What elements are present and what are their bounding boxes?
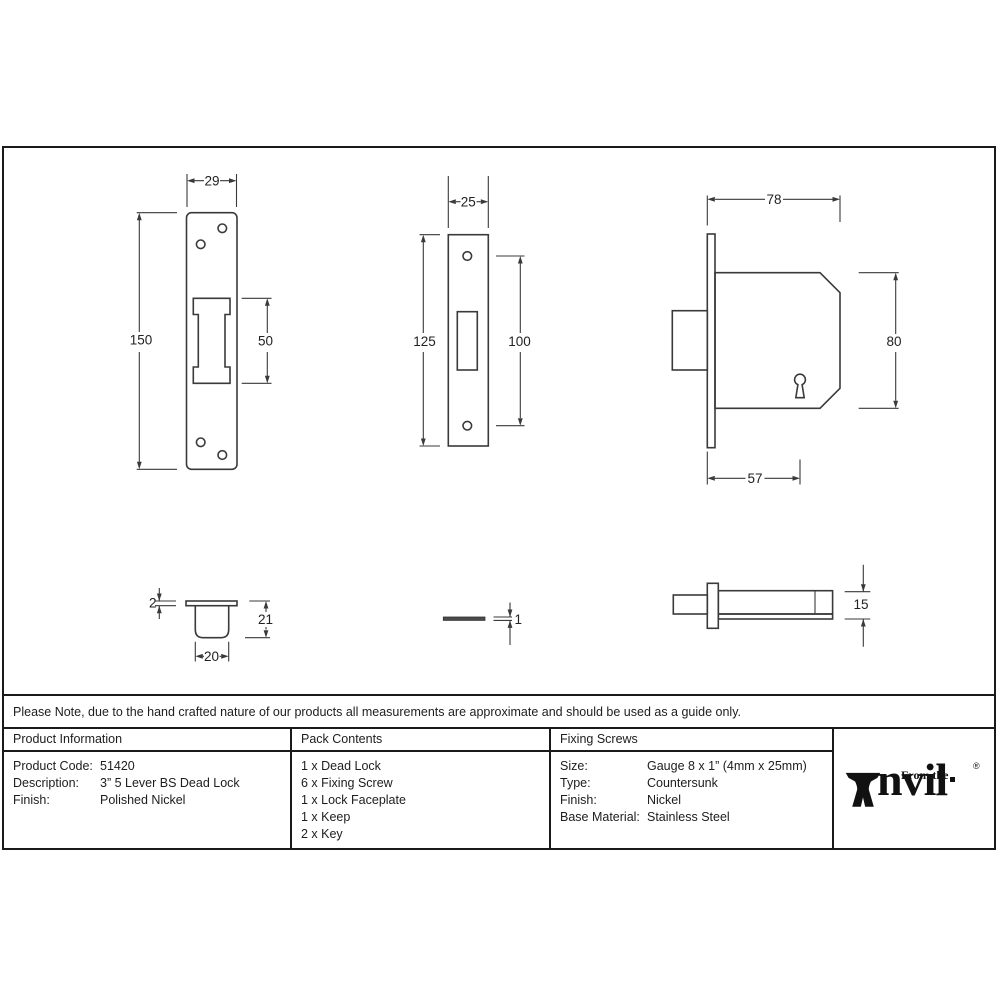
dim-height-125: 125 (413, 235, 440, 446)
logo-dot (950, 777, 955, 782)
row-label: Product Code: (13, 758, 100, 775)
dim-label: 25 (461, 194, 476, 209)
dim-label: 2 (149, 596, 157, 611)
dim-label: 57 (747, 471, 762, 486)
dim-label: 50 (258, 334, 273, 349)
dim-depth-21: 21 (245, 601, 273, 638)
dim-label: 15 (853, 597, 868, 612)
screw-hole-icon (196, 240, 205, 249)
technical-drawings: 29 150 50 (4, 148, 994, 694)
row-label: Type: (560, 775, 647, 792)
faceplate-top (707, 583, 718, 628)
logo-prefix: From the (901, 768, 948, 783)
dim-width-25: 25 (448, 176, 488, 228)
deadbolt (672, 311, 707, 370)
dim-width-78: 78 (707, 192, 840, 226)
pack-contents-cell: Pack Contents 1 x Dead Lock 6 x Fixing S… (292, 729, 551, 848)
brand-cell: nvil From the ® (834, 729, 994, 848)
anvil-logo: nvil From the ® (845, 762, 983, 816)
screw-hole-icon (463, 252, 472, 261)
row-value: Nickel (647, 792, 681, 809)
dim-label: 29 (204, 173, 219, 188)
row-label: Base Material: (560, 809, 647, 826)
row-value: Countersunk (647, 775, 718, 792)
dim-holes-100: 100 (496, 256, 531, 426)
spec-table: Product Information Product Code: 51420 … (4, 729, 994, 848)
row-label: Size: (560, 758, 647, 775)
table-row: Product Code: 51420 (13, 758, 290, 775)
note-row: Please Note, due to the hand crafted nat… (4, 694, 994, 729)
list-item: 6 x Fixing Screw (301, 775, 549, 792)
screw-hole-icon (196, 438, 205, 447)
faceplate-side-drawing: 1 (443, 603, 522, 646)
keyhole-icon (795, 374, 806, 397)
dim-thickness-1: 1 (494, 603, 523, 646)
dim-height-80: 80 (859, 273, 902, 409)
dim-width-29: 29 (187, 173, 237, 207)
keep-cup (195, 606, 228, 638)
list-item: 1 x Keep (301, 809, 549, 826)
screw-hole-icon (218, 224, 227, 233)
list-item: 2 x Key (301, 826, 549, 843)
dim-label: 21 (258, 612, 273, 627)
screw-hole-icon (463, 421, 472, 430)
dim-height-15: 15 (845, 565, 871, 647)
table-row: Description: 3” 5 Lever BS Dead Lock (13, 775, 290, 792)
row-value: Stainless Steel (647, 809, 730, 826)
faceplate-outline (187, 213, 238, 470)
row-value: Polished Nickel (100, 792, 185, 809)
product-information-header: Product Information (4, 729, 290, 752)
dim-label: 78 (766, 192, 781, 207)
dim-cutout-50: 50 (242, 298, 273, 383)
lock-body-drawing: 78 80 57 (672, 192, 901, 486)
note-text: Please Note, due to the hand crafted nat… (13, 705, 741, 719)
faceplate-front-drawing: 29 150 50 (130, 173, 273, 469)
row-value: 51420 (100, 758, 135, 775)
pack-contents-header: Pack Contents (292, 729, 549, 752)
sheet-border: 29 150 50 (2, 146, 996, 850)
dim-label: 1 (515, 612, 523, 627)
keep-section-drawing: 2 21 20 (149, 588, 273, 664)
bolt-cutout (193, 298, 230, 383)
table-row: Type: Countersunk (560, 775, 832, 792)
fixing-screws-header: Fixing Screws (551, 729, 832, 752)
row-value: Gauge 8 x 1” (4mm x 25mm) (647, 758, 807, 775)
table-row: Finish: Nickel (560, 792, 832, 809)
lock-case-outline (715, 273, 840, 409)
dim-height-150: 150 (130, 213, 177, 470)
anvil-icon (845, 769, 881, 812)
table-row: Finish: Polished Nickel (13, 792, 290, 809)
row-label: Description: (13, 775, 100, 792)
product-information-cell: Product Information Product Code: 51420 … (4, 729, 292, 848)
dim-label: 125 (413, 334, 436, 349)
dim-backset-57: 57 (707, 452, 800, 486)
registered-mark-icon: ® (973, 761, 980, 771)
row-value: 3” 5 Lever BS Dead Lock (100, 775, 240, 792)
keep-plate-drawing: 25 125 100 (413, 176, 531, 446)
dim-label: 80 (886, 334, 901, 349)
dim-flange-2: 2 (149, 588, 176, 619)
row-label: Finish: (13, 792, 100, 809)
screw-hole-icon (218, 451, 227, 460)
lock-top-drawing: 15 (673, 565, 870, 647)
deadbolt-top (673, 595, 707, 614)
row-label: Finish: (560, 792, 647, 809)
case-base-strip (718, 614, 832, 619)
dim-label: 20 (204, 649, 219, 664)
faceplate-edge (707, 234, 715, 448)
spec-sheet: 29 150 50 (0, 0, 1000, 1000)
table-row: Size: Gauge 8 x 1” (4mm x 25mm) (560, 758, 832, 775)
list-item: 1 x Lock Faceplate (301, 792, 549, 809)
keep-plate-outline (448, 235, 488, 446)
bolt-cutout (457, 312, 477, 370)
dim-width-20: 20 (195, 642, 228, 664)
dim-label: 100 (508, 334, 531, 349)
dim-label: 150 (130, 333, 153, 348)
faceplate-edge-bar (443, 617, 485, 620)
fixing-screws-cell: Fixing Screws Size: Gauge 8 x 1” (4mm x … (551, 729, 834, 848)
keep-flange (186, 601, 237, 606)
table-row: Base Material: Stainless Steel (560, 809, 832, 826)
list-item: 1 x Dead Lock (301, 758, 549, 775)
